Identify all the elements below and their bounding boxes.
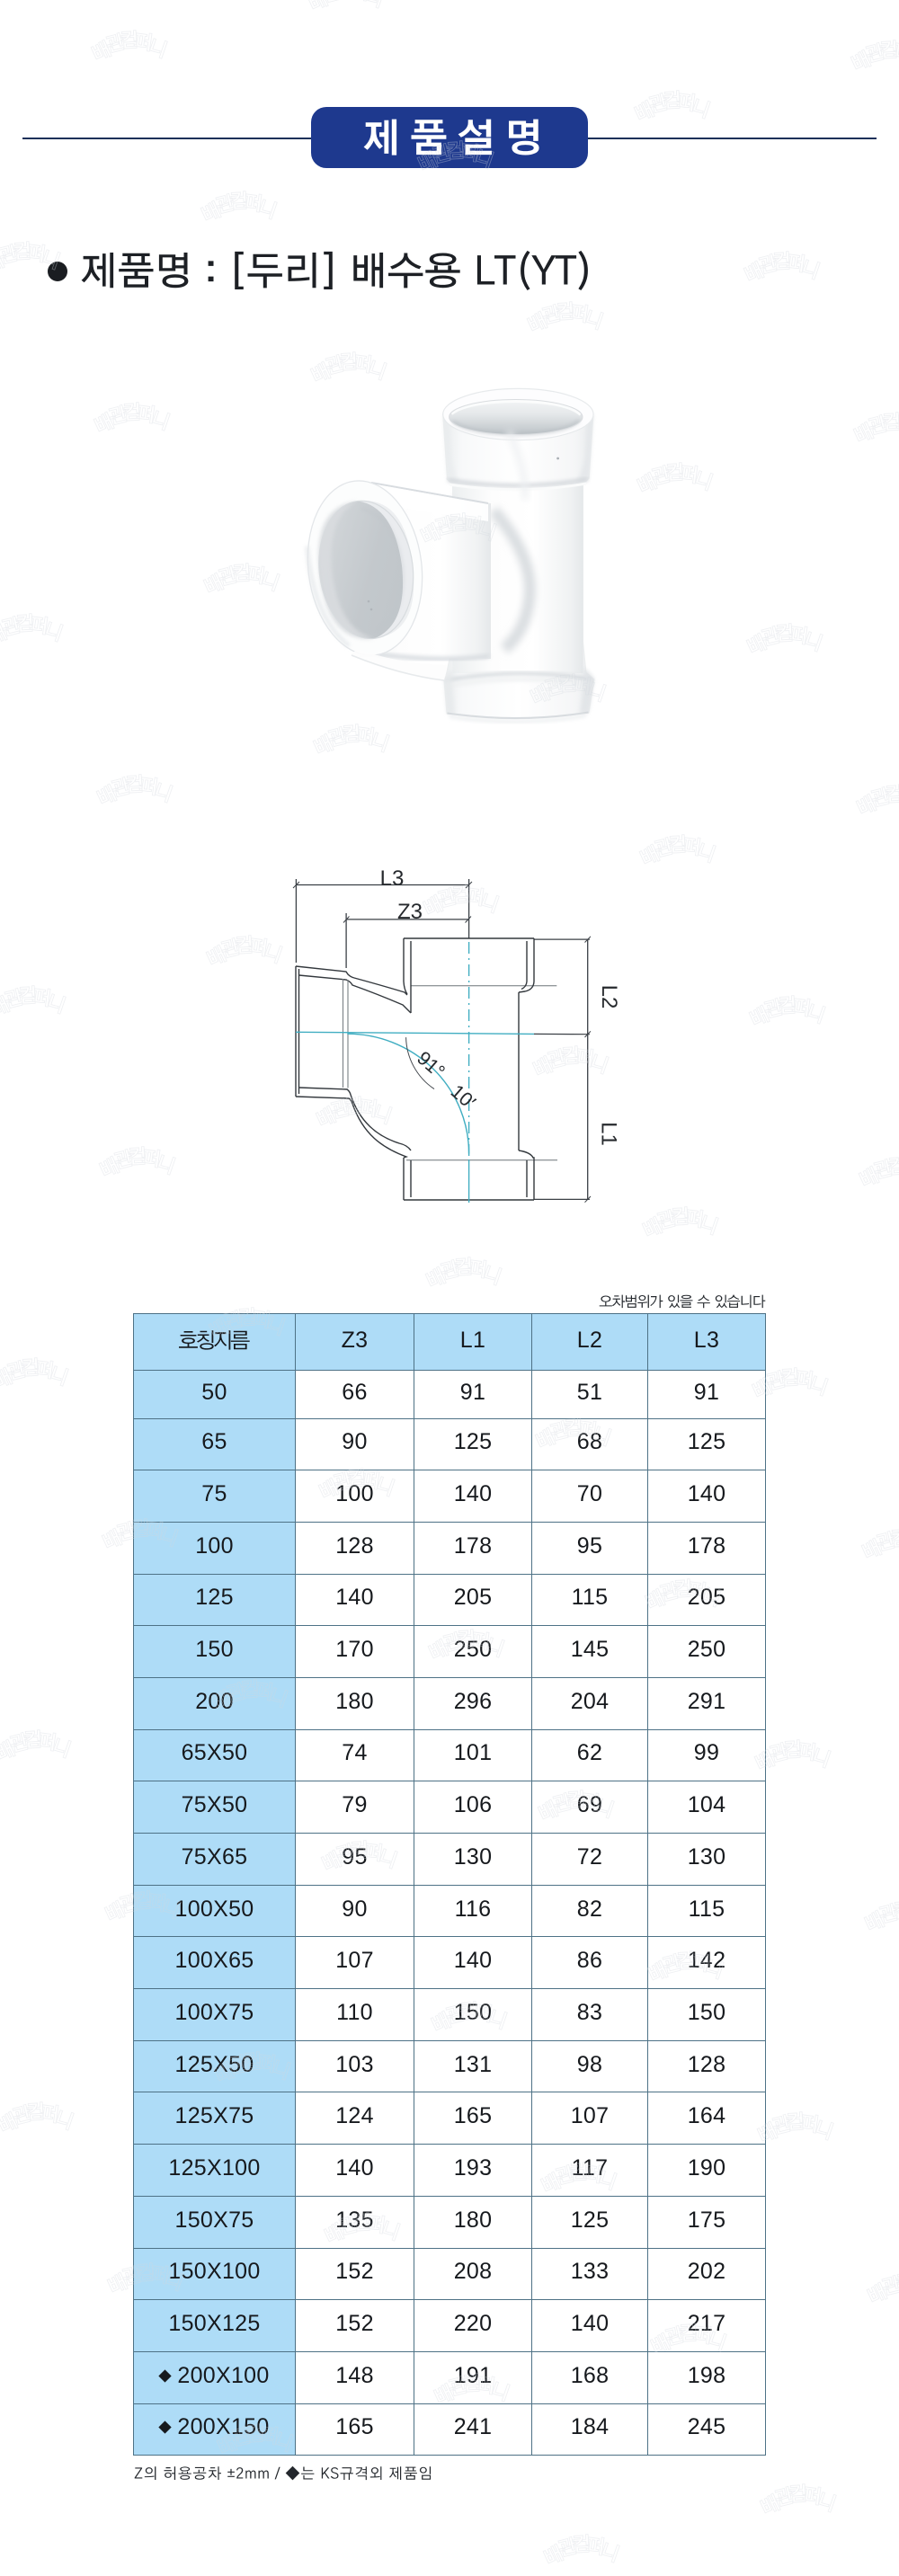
svg-text:L1: L1 xyxy=(597,1122,621,1146)
svg-text:L3: L3 xyxy=(380,866,405,891)
svg-text:91°: 91° xyxy=(413,1047,449,1082)
svg-text:L2: L2 xyxy=(597,985,621,1009)
svg-text:10′: 10′ xyxy=(447,1080,480,1113)
